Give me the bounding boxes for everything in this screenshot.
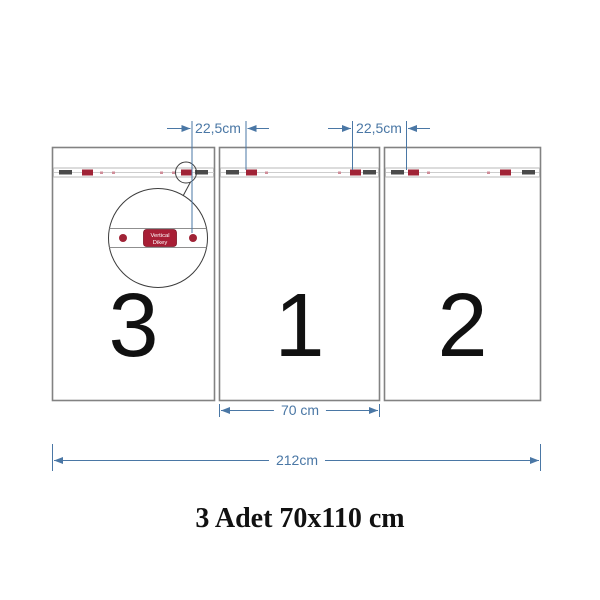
strip-tick xyxy=(487,172,490,175)
dimension-text-clip-gap-right: 22,5cm xyxy=(356,120,402,136)
dark-clip-icon xyxy=(59,170,72,175)
panel-number-2: 2 xyxy=(384,281,541,371)
red-clip-icon xyxy=(408,170,419,176)
panel-number-3: 3 xyxy=(52,281,215,371)
strip-tick xyxy=(172,172,175,175)
label-text-line1: Vertical xyxy=(150,233,169,239)
red-clip-icon xyxy=(500,170,511,176)
strip-tick xyxy=(338,172,341,175)
strip-tick xyxy=(265,172,268,175)
label-text-line2: Dikey xyxy=(153,240,168,246)
dark-clip-icon xyxy=(522,170,535,175)
dimension-text-panel-width: 70 cm xyxy=(274,402,326,418)
dark-clip-icon xyxy=(226,170,239,175)
strip-tick xyxy=(112,172,115,175)
dark-clip-icon xyxy=(391,170,404,175)
diagram-canvas: Vertical Dikey 3 1 2 22,5cm 22,5cm 70 cm… xyxy=(0,0,600,600)
red-clip-icon xyxy=(82,170,93,176)
dimension-text-total-width: 212cm xyxy=(269,452,325,468)
hanger-dot-left xyxy=(119,234,127,242)
strip-tick xyxy=(427,172,430,175)
dimension-text-clip-gap-left: 22,5cm xyxy=(195,120,241,136)
hanger-dot-right xyxy=(189,234,197,242)
strip-tick xyxy=(160,172,163,175)
panel-number-1: 1 xyxy=(219,281,380,371)
strip-tick xyxy=(100,172,103,175)
red-clip-icon xyxy=(181,170,192,176)
red-clip-icon xyxy=(246,170,257,176)
red-clip-icon xyxy=(350,170,361,176)
diagram-title: 3 Adet 70x110 cm xyxy=(0,503,600,535)
dark-clip-icon xyxy=(363,170,376,175)
